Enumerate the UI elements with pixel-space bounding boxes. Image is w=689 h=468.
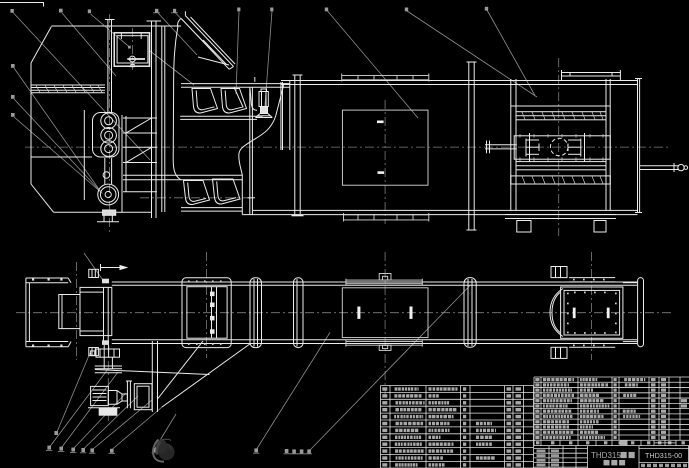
svg-text:THD315: THD315 — [591, 451, 621, 460]
svg-text:THD315-00: THD315-00 — [645, 451, 682, 460]
